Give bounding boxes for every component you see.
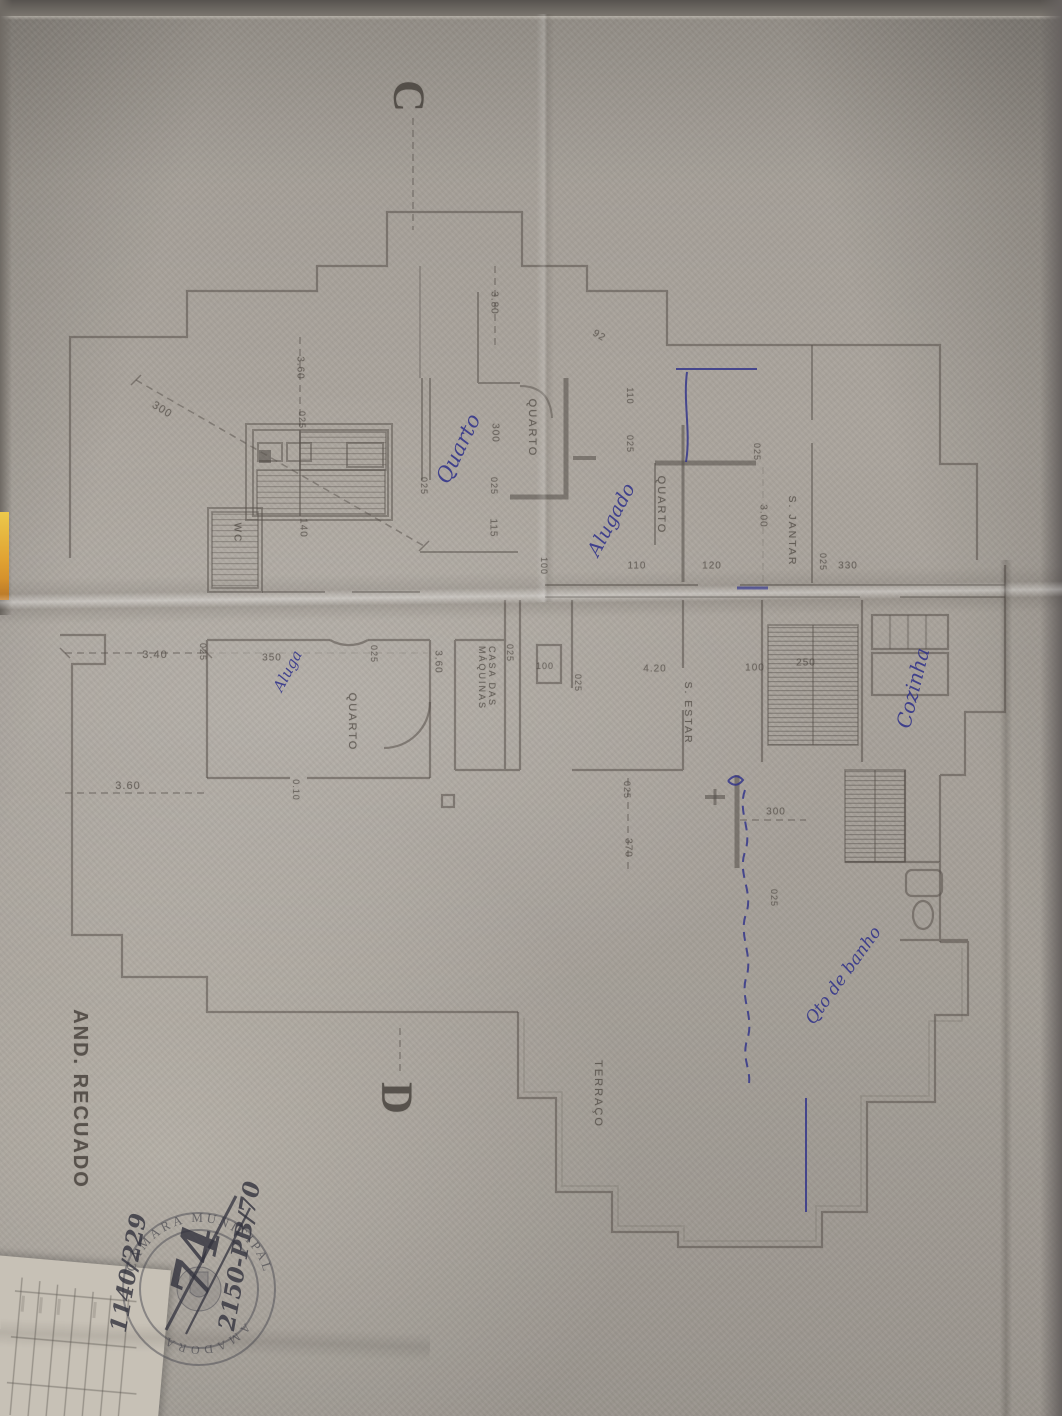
dim-025-c: 025 — [419, 477, 429, 495]
drawing-title-and-recuado: AND. RECUADO — [69, 1009, 91, 1189]
dim-120: 120 — [702, 560, 722, 571]
dim-380: 3.80 — [488, 291, 499, 314]
annotations-layer: CDQUARTOQUARTOS. JANTARS. ESTARQUARTOWCC… — [0, 0, 1062, 1416]
dim-100-b: 100 — [536, 661, 554, 671]
room-label-quarto-2: QUARTO — [655, 476, 667, 535]
dim-100-a: 100 — [539, 557, 549, 575]
dim-025-k: 025 — [622, 781, 632, 799]
section-marker-c: C — [384, 80, 433, 112]
dim-92: 92 — [590, 328, 607, 344]
dim-025-j: 025 — [573, 674, 583, 692]
dim-300-b: 300 — [489, 423, 500, 443]
dim-370: 370 — [622, 838, 633, 858]
room-label-casa-das-maquinas: CASA DAS MÁQUINAS — [477, 646, 497, 710]
dim-025-g: 025 — [198, 643, 208, 661]
dim-025-f: 025 — [818, 553, 828, 571]
dim-010: 0.10 — [291, 779, 301, 801]
dim-300-diagonal: 300 — [150, 399, 175, 421]
dim-025-l: 025 — [769, 889, 779, 907]
dim-025-i: 025 — [505, 644, 515, 662]
dim-115: 115 — [487, 519, 498, 538]
room-label-quarto-3: QUARTO — [346, 693, 358, 752]
dim-100-c: 100 — [745, 662, 765, 673]
room-label-s-jantar: S. JANTAR — [785, 496, 797, 567]
dim-140: 140 — [297, 518, 308, 538]
room-label-s-estar: S. ESTAR — [681, 681, 693, 744]
room-label-wc: WC — [231, 523, 242, 544]
handwritten-note-quarto: Quarto — [432, 410, 486, 487]
dim-025-d: 025 — [625, 435, 635, 453]
room-label-terraco: TERRAÇO — [592, 1060, 604, 1128]
dim-110-a: 110 — [625, 387, 635, 404]
dim-360-top: 3.60 — [294, 356, 305, 379]
handwritten-note-cozinha: Cozinha — [892, 646, 934, 731]
dim-300-d: 300 — [766, 806, 786, 817]
handwritten-note-alugado: Alugado — [584, 480, 640, 560]
stamp-number-1140-229: 1140/229 — [106, 1211, 152, 1334]
dim-025-b: 025 — [489, 477, 499, 495]
section-marker-d: D — [372, 1082, 421, 1114]
dim-420: 4.20 — [643, 663, 666, 674]
dim-250: 250 — [796, 657, 816, 668]
dim-110-b: 110 — [628, 560, 647, 571]
dim-350: 350 — [262, 652, 282, 663]
dim-300-c: 3.00 — [757, 504, 768, 527]
dim-360-left: 3.60 — [115, 780, 140, 792]
dim-025-e: 025 — [752, 443, 762, 461]
room-label-quarto-1: QUARTO — [526, 399, 538, 458]
dim-025-h: 025 — [369, 645, 379, 663]
handwritten-note-qto-banho: Qto de banho — [802, 924, 886, 1029]
dim-360-mid: 3.60 — [432, 650, 443, 673]
blueprint-photo: CÂMARA MUNICIPAL AMADORA CDQUARTOQUARTOS… — [0, 0, 1062, 1416]
dim-025-a: 025 — [297, 411, 307, 429]
dim-330: 330 — [838, 560, 858, 571]
dim-340: 3.40 — [142, 649, 167, 661]
